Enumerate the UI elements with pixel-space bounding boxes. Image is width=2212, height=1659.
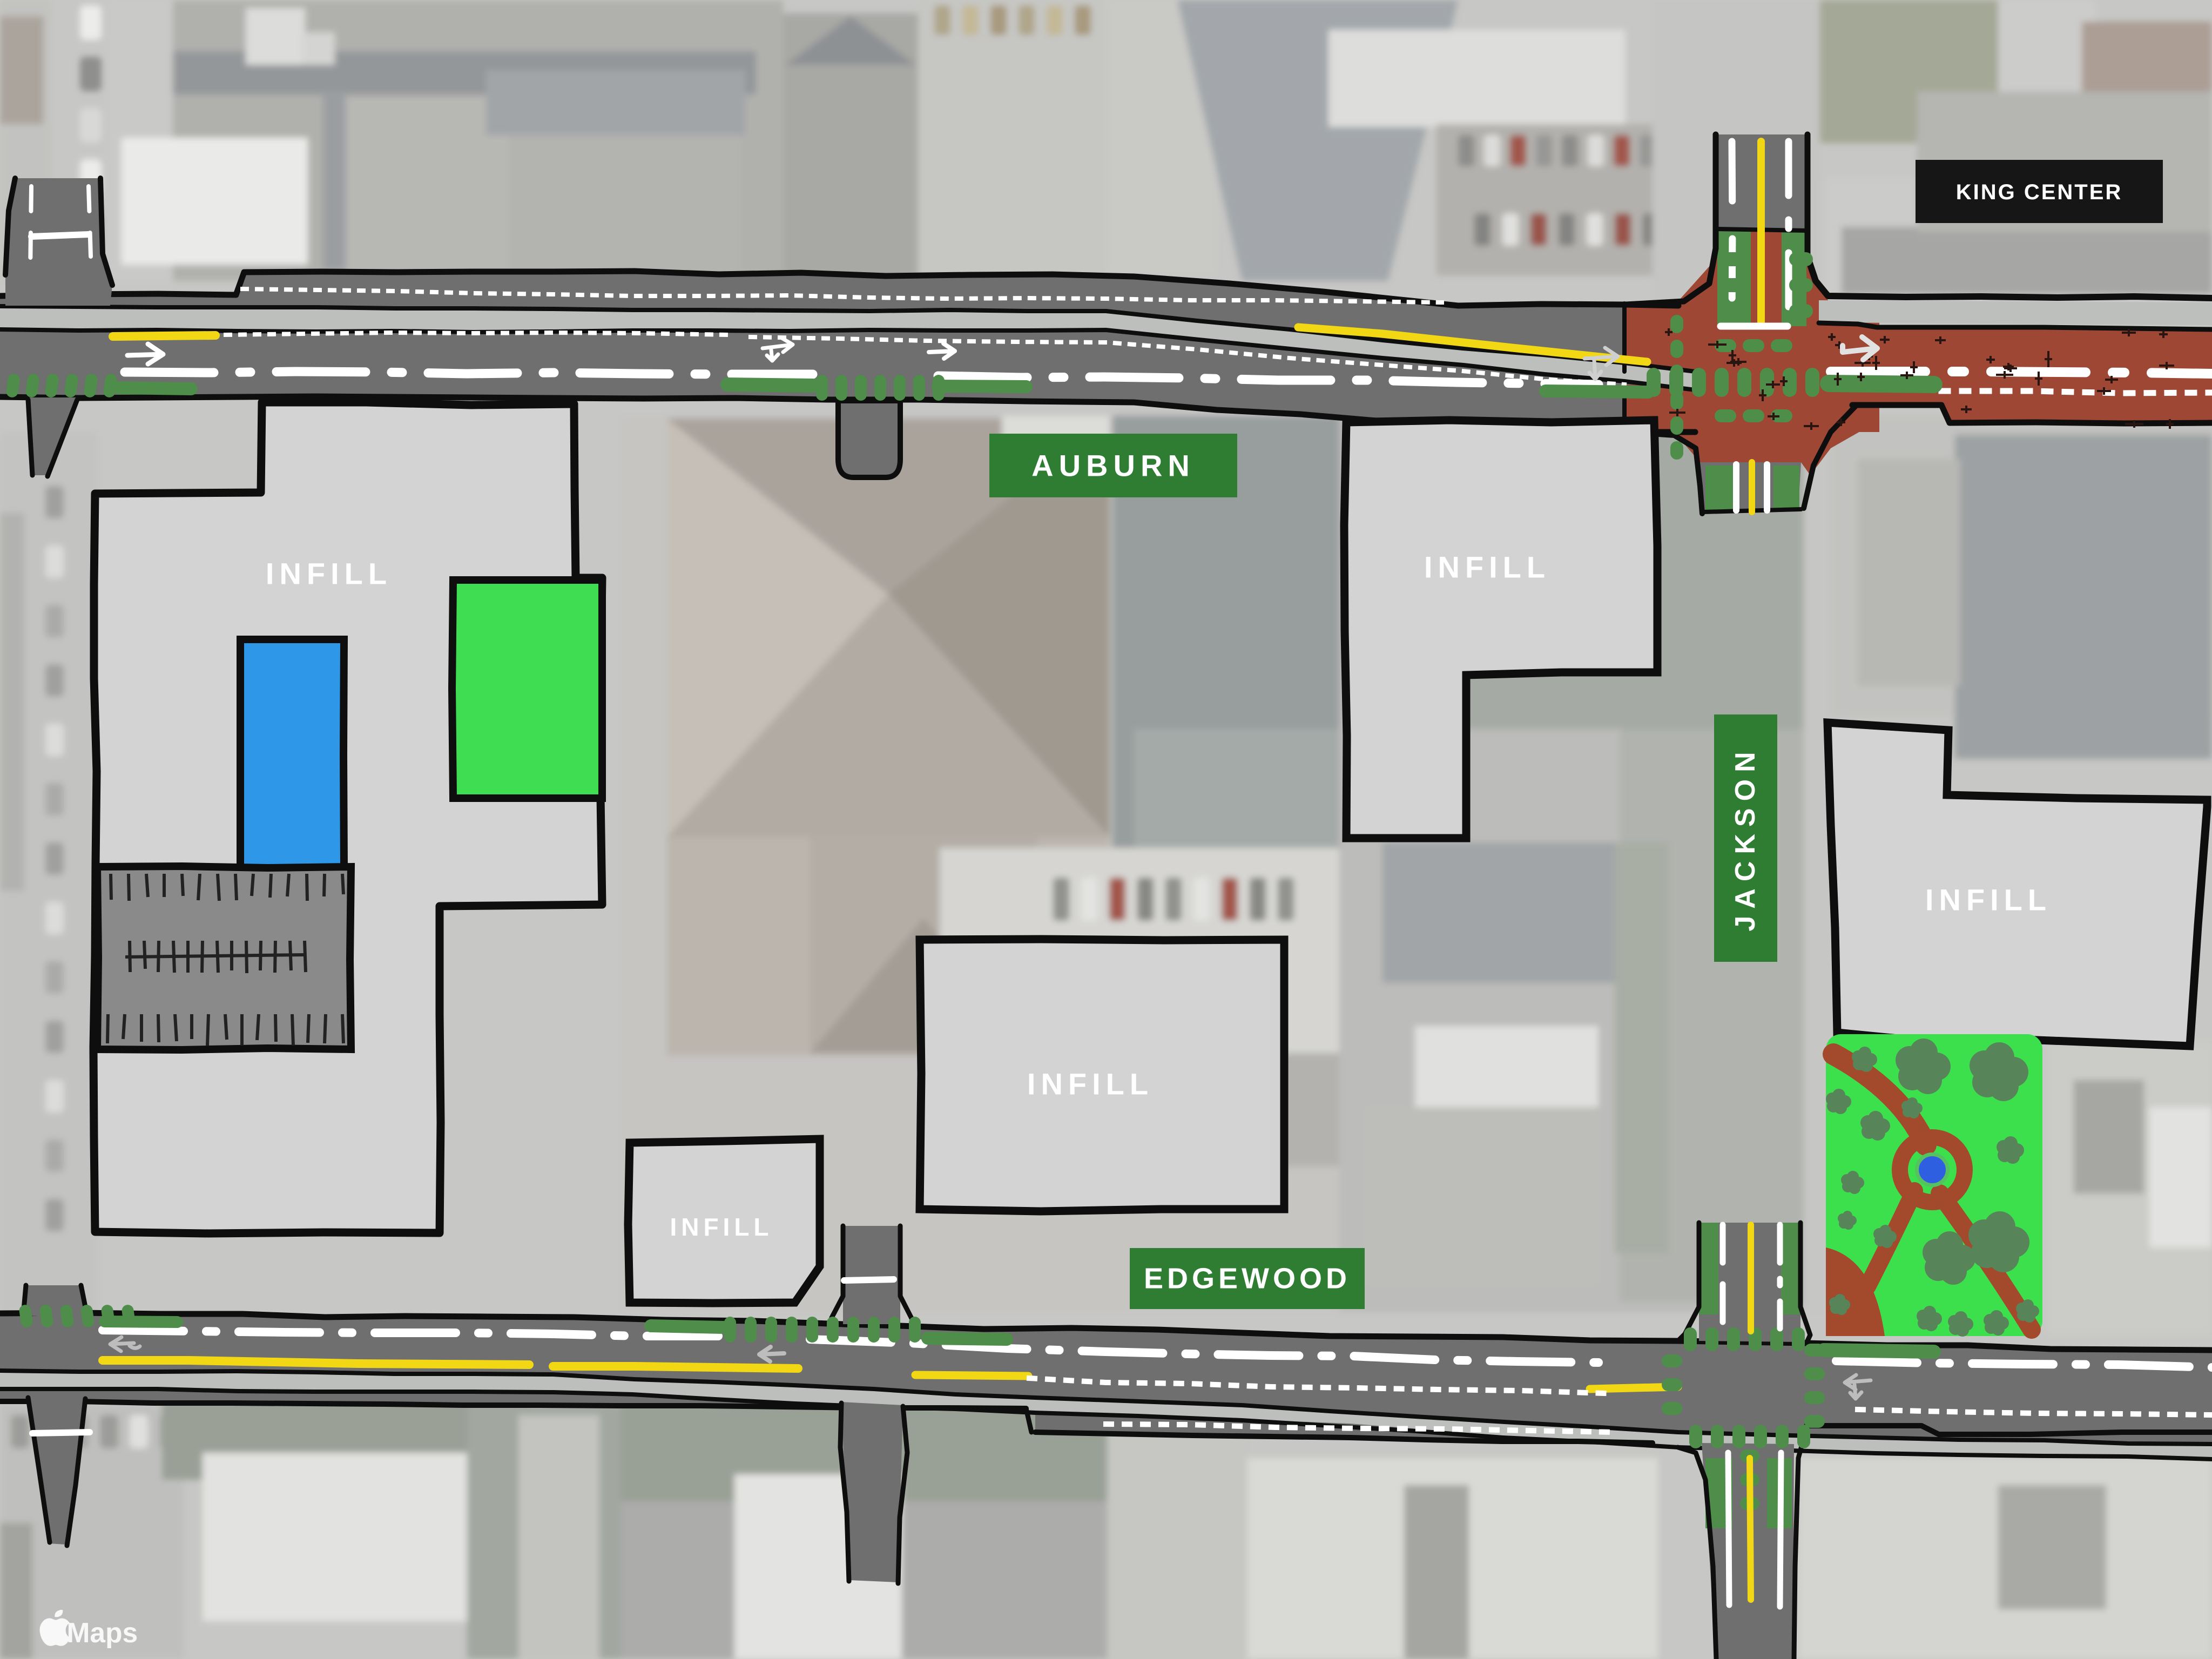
svg-text:INFILL: INFILL (1027, 1067, 1154, 1101)
svg-text:JACKSON: JACKSON (1730, 745, 1761, 931)
svg-text:INFILL: INFILL (1424, 550, 1550, 584)
svg-text:INFILL: INFILL (1925, 883, 2052, 917)
svg-text:INFILL: INFILL (266, 557, 392, 591)
svg-text:Maps: Maps (67, 1617, 138, 1648)
svg-text:INFILL: INFILL (670, 1213, 773, 1241)
svg-text:EDGEWOOD: EDGEWOOD (1144, 1263, 1351, 1295)
svg-text:AUBURN: AUBURN (1031, 449, 1195, 483)
svg-text:KING CENTER: KING CENTER (1956, 180, 2123, 204)
